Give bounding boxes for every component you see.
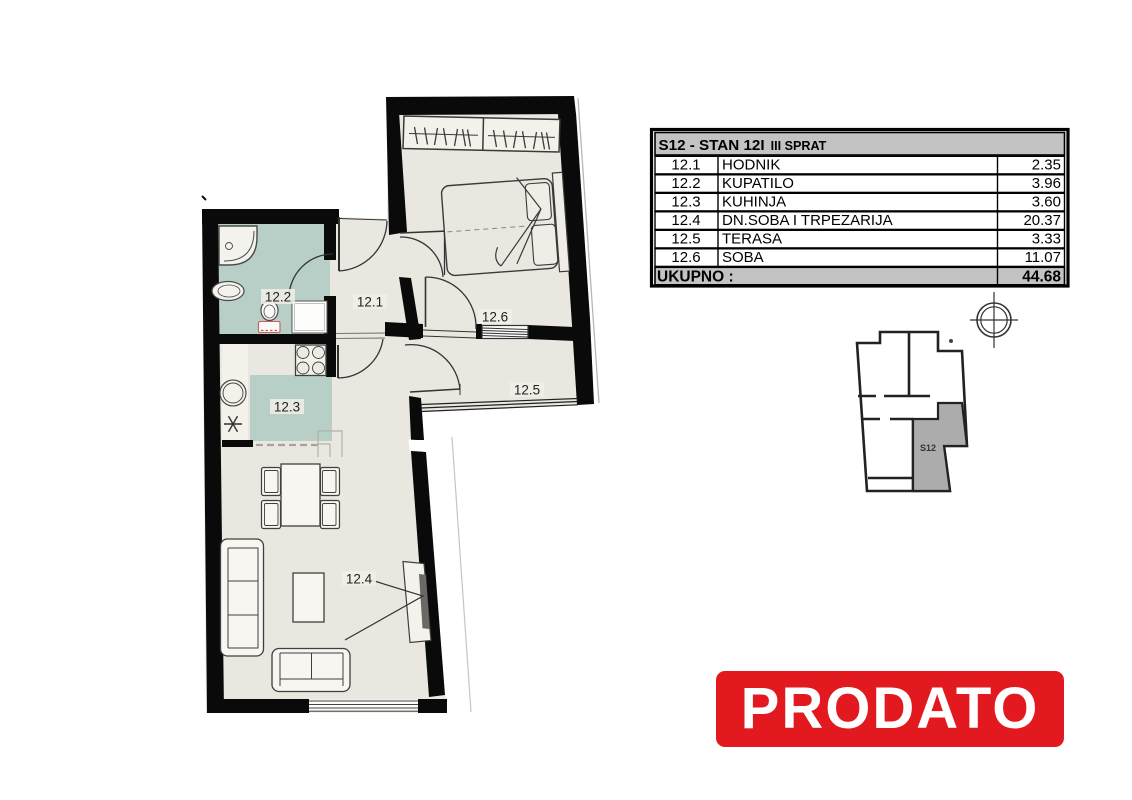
svg-text:12.5: 12.5 (514, 383, 540, 398)
svg-text:12.6: 12.6 (671, 249, 700, 266)
svg-text:DN.SOBA I TRPEZARIJA: DN.SOBA I TRPEZARIJA (722, 212, 893, 229)
svg-text:3.60: 3.60 (1032, 194, 1061, 211)
svg-text:2.35: 2.35 (1032, 157, 1061, 174)
svg-text:12.5: 12.5 (671, 231, 700, 248)
svg-text:11.07: 11.07 (1025, 249, 1061, 266)
svg-text:3.96: 3.96 (1032, 175, 1061, 192)
svg-text:HODNIK: HODNIK (722, 157, 780, 174)
svg-text:KUPATILO: KUPATILO (722, 175, 794, 192)
svg-text:12.4: 12.4 (346, 572, 373, 587)
svg-text:12.3: 12.3 (274, 400, 300, 415)
svg-text:SOBA: SOBA (722, 249, 764, 266)
svg-text:12.2: 12.2 (671, 175, 700, 192)
svg-text:12.3: 12.3 (671, 194, 700, 211)
svg-text:S12 - STAN 12IIII SPRAT: S12 - STAN 12IIII SPRAT (659, 137, 827, 154)
svg-text:12.6: 12.6 (482, 310, 508, 325)
svg-text:KUHINJA: KUHINJA (722, 194, 786, 211)
svg-text:3.33: 3.33 (1032, 231, 1061, 248)
svg-text:12.1: 12.1 (357, 295, 383, 310)
svg-text:20.37: 20.37 (1023, 212, 1061, 229)
svg-text:12.4: 12.4 (671, 212, 700, 229)
svg-text:PRODATO: PRODATO (741, 676, 1040, 741)
svg-text:UKUPNO :: UKUPNO : (657, 268, 734, 285)
svg-text:12.2: 12.2 (265, 290, 291, 305)
svg-text:12.1: 12.1 (671, 157, 700, 174)
svg-text:TERASA: TERASA (722, 231, 782, 248)
svg-text:44.68: 44.68 (1022, 268, 1061, 285)
svg-text:S12: S12 (920, 443, 936, 453)
